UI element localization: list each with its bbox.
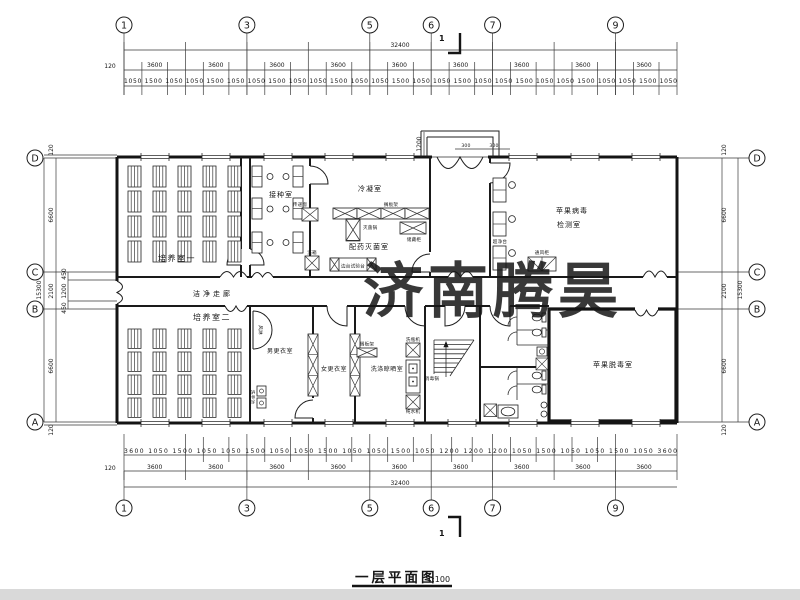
svg-text:120: 120 [48, 424, 55, 436]
grid-bubbles-top: 1 3 5 6 7 9 [116, 17, 624, 33]
svg-text:15300: 15300 [737, 280, 744, 299]
svg-text:9: 9 [612, 21, 618, 32]
label-shelf-rack2: 搁板架 [360, 341, 375, 348]
label-storage-cabinet: 储藏柜 [407, 236, 422, 243]
room-label-cultivation2: 培养室二 [193, 312, 231, 322]
grid-bubbles-bottom: 1 3 5 6 7 9 [116, 500, 624, 516]
svg-text:6: 6 [428, 21, 434, 32]
dim-top-edge: 120 [104, 63, 116, 70]
svg-text:1200: 1200 [61, 283, 68, 298]
racks-cultivation1 [128, 166, 241, 262]
svg-text:6: 6 [428, 504, 434, 515]
room-label-men-changing: 男更衣室 [267, 347, 293, 355]
dim-top-overall: 32400 [390, 42, 409, 49]
label-bottle-washer: 洗瓶机 [406, 336, 421, 343]
dim-bottom-bays: 3600 3600 3600 3600 3600 3600 3600 3600 … [147, 464, 652, 471]
svg-text:D: D [753, 154, 760, 165]
label-shelf-rack: 搁板架 [384, 201, 399, 208]
svg-text:1: 1 [439, 529, 445, 538]
hand-wash-fixtures [257, 386, 266, 408]
room-label-women-changing: 女更衣室 [321, 365, 347, 373]
room-label-washing-drying: 洗涤晾晒室 [371, 365, 404, 373]
label-clean-bench: 超净台 [493, 238, 508, 245]
dim-top-sub: 1050 1500 1050 1050 1500 1050 1050 1500 … [124, 78, 677, 85]
room-label-condensation: 冷凝室 [358, 184, 382, 193]
section-marker-bottom: 1 [439, 517, 460, 538]
svg-text:5: 5 [367, 21, 373, 32]
racks-cultivation2 [128, 329, 241, 417]
svg-text:1: 1 [121, 21, 127, 32]
room-label-detection-1: 苹果病毒 [556, 206, 588, 215]
svg-text:6600: 6600 [721, 207, 728, 222]
watermark-text: 济南腾昊 [363, 257, 623, 327]
title-text: 一层平面图 [355, 570, 438, 586]
svg-text:120: 120 [721, 144, 728, 156]
dimension-grid-right: 120 6600 2100 6600 120 15300 D C B A [677, 144, 765, 436]
svg-text:300: 300 [489, 143, 498, 149]
svg-text:9: 9 [612, 504, 618, 515]
washing-room-equipment [357, 343, 420, 409]
svg-text:450: 450 [61, 268, 68, 280]
svg-text:B: B [754, 305, 761, 316]
changing-room-lockers [308, 334, 360, 396]
svg-text:A: A [32, 418, 39, 429]
room-label-cultivation1: 培养室一 [158, 253, 196, 263]
label-pass-window: 传递窗 [293, 201, 308, 208]
room-label-clean-corridor: 洁净走廊 [193, 289, 233, 298]
svg-text:C: C [32, 268, 39, 279]
label-side-test-bench: 边台试验台 [341, 263, 365, 270]
svg-text:3: 3 [244, 21, 250, 32]
svg-text:2100: 2100 [48, 283, 55, 298]
grid-bubbles-right: D C B A [749, 150, 765, 430]
label-pure-water-machine: 纯水机 [406, 408, 421, 415]
label-sterilizer-pot: 灭菌锅 [363, 224, 378, 231]
svg-text:5: 5 [367, 504, 373, 515]
title-scale: 1:100 [427, 575, 450, 584]
svg-text:1: 1 [439, 34, 445, 43]
svg-text:7: 7 [490, 504, 496, 515]
drawing-title: 一层平面图 1:100 [352, 570, 452, 590]
svg-text:15300: 15300 [36, 280, 43, 299]
dimension-grid-top: 32400 3600 3600 3600 3600 3600 3600 3600… [104, 17, 677, 95]
svg-text:120: 120 [721, 424, 728, 436]
label-fume-hood: 通风柜 [535, 249, 550, 256]
svg-text:D: D [31, 154, 38, 165]
room-label-inoculation: 接种室 [269, 190, 293, 199]
floor-plan-svg: 32400 3600 3600 3600 3600 3600 3600 3600… [0, 0, 800, 600]
inoculation-benches [252, 166, 303, 253]
dim-bottom-overall: 32400 [390, 480, 409, 487]
svg-text:A: A [754, 418, 761, 429]
dimension-grid-bottom: 3600 1050 1500 1050 1050 1500 1050 1050 … [104, 434, 677, 538]
room-label-detox: 苹果脱毒室 [593, 360, 633, 369]
shelf-row [333, 208, 429, 219]
svg-text:450: 450 [61, 302, 68, 314]
svg-text:6600: 6600 [48, 207, 55, 222]
label-disinfect-pot: 消毒锅 [425, 375, 440, 382]
svg-text:1200: 1200 [416, 136, 423, 151]
label-wash-box: 洗箱 [307, 249, 317, 256]
label-air-shower: 风淋 [257, 325, 264, 335]
svg-text:120: 120 [48, 144, 55, 156]
svg-text:1: 1 [121, 504, 127, 515]
room-label-prep-sterilization: 配药灭菌室 [349, 242, 389, 251]
svg-text:6600: 6600 [721, 358, 728, 373]
stair [434, 340, 474, 377]
svg-text:C: C [754, 268, 761, 279]
svg-text:7: 7 [490, 21, 496, 32]
svg-text:6600: 6600 [48, 358, 55, 373]
svg-text:2100: 2100 [721, 283, 728, 298]
bottom-bar [0, 589, 800, 600]
dim-top-bays: 3600 3600 3600 3600 3600 3600 3600 3600 … [147, 62, 652, 69]
dim-bottom-edge: 120 [104, 465, 116, 472]
svg-text:3: 3 [244, 504, 250, 515]
label-hand-wash-sink: 洗手池 [249, 390, 256, 405]
dim-bottom-sub: 3600 1050 1500 1050 1050 1500 1050 1050 … [124, 448, 677, 455]
svg-text:B: B [32, 305, 39, 316]
room-label-detection-2: 检测室 [557, 220, 581, 229]
dimension-grid-left: 120 6600 2100 6600 120 450 1200 450 1530… [27, 144, 117, 436]
svg-text:300: 300 [461, 143, 470, 149]
